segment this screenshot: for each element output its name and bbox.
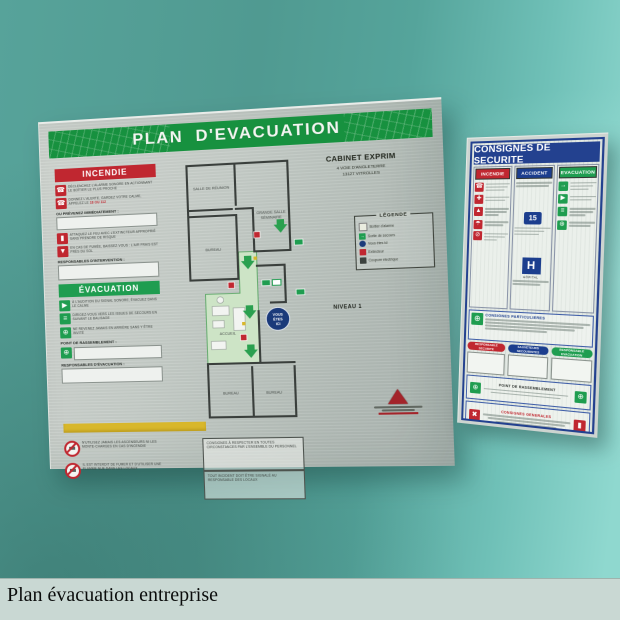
svg-text:SALLE DE RÉUNION: SALLE DE RÉUNION	[193, 184, 230, 191]
assembly-icon: ⊕	[557, 220, 567, 230]
exit-run-icon: ▶	[558, 194, 568, 204]
evacuation-writein-box	[61, 366, 163, 383]
assembly-point-icon: ⊕	[61, 347, 72, 358]
evacuation-plan-sign: PLAN D'EVACUATION INCENDIE ☎ Déclenchez …	[38, 97, 455, 469]
phone-icon: ☎	[475, 182, 484, 191]
notice-box: Consignes à respecter en toutes circonst…	[202, 437, 304, 471]
alarm-marker	[253, 256, 256, 259]
column-evacuation: EVACUATION → ▶ ≡ ⊕	[552, 164, 599, 314]
caption-text: Plan évacuation entreprise	[0, 579, 620, 607]
incendie-item: ▮ Attaquez le feu avec l'extincteur appr…	[57, 228, 158, 244]
smoke-icon: ☂	[473, 220, 482, 229]
svg-text:BUREAU: BUREAU	[266, 390, 283, 394]
no-return-icon: ⊕	[60, 327, 71, 338]
instruction-column: INCENDIE ☎ Déclenchez l'alarme sonore en…	[55, 164, 164, 384]
logo-red-bar	[379, 412, 419, 415]
plan-title: PLAN D'EVACUATION	[132, 119, 341, 150]
evacuation-header: ÉVACUATION	[59, 281, 160, 298]
svg-text:ACCUEIL: ACCUEIL	[220, 331, 236, 336]
incendie-item: ☎ Donnez l'alerte, gardez votre calme, a…	[56, 193, 157, 209]
caption-bar: Plan évacuation entreprise	[0, 578, 620, 620]
hospital-sign: H	[521, 258, 540, 275]
svg-text:BUREAU: BUREAU	[223, 391, 239, 395]
svg-text:SÉMINAIRE: SÉMINAIRE	[261, 214, 283, 220]
writein-box	[508, 354, 548, 379]
safety-sign-title: CONSIGNES DE SECURITE	[474, 141, 601, 164]
pill-sauveteurs: SAUVETEURS SECOURISTES	[508, 344, 548, 355]
assembly-point-row: ⊕	[61, 345, 163, 361]
exit-man-icon: ▶	[59, 300, 70, 311]
writein-box	[467, 351, 506, 375]
pill-responsable-securite: RESPONSABLE SECURITE	[467, 341, 505, 352]
level-label: NIVEAU 1	[333, 304, 362, 311]
hand-stop-icon: ✖	[469, 408, 480, 420]
fire-icon: ▲	[474, 207, 483, 216]
no-elevator-icon	[64, 440, 81, 456]
exit-man-icon: →	[558, 181, 568, 191]
notice-box: Tout incident doit être signalé au respo…	[203, 470, 305, 499]
svg-text:ÊTES: ÊTES	[273, 316, 283, 322]
phone-icon: ☎	[56, 198, 67, 210]
evacuation-item: ▶ À l'audition du signal sonore, évacuez…	[59, 297, 160, 312]
alarm-box-icon	[359, 222, 368, 231]
assembly-point-label: POINT DE RASSEMBLEMENT :	[60, 338, 161, 345]
incendie-item: ▼ En cas de fumée, baissez-vous : l'air …	[57, 242, 158, 257]
column-incendie: INCENDIE ☎ ✚ ▲ ☂ ⊘	[469, 166, 513, 309]
plan-title-band: PLAN D'EVACUATION	[48, 108, 432, 158]
smoke-crawl-icon: ▼	[57, 246, 68, 257]
safety-sign-frame: CONSIGNES DE SECURITE INCENDIE ☎ ✚ ▲ ☂ ⊘	[461, 137, 605, 434]
power-cut-icon	[360, 257, 367, 264]
samu-15-sign: 15	[524, 212, 542, 225]
safety-instructions-sign: CONSIGNES DE SECURITE INCENDIE ☎ ✚ ▲ ☂ ⊘	[457, 132, 608, 437]
evacuation-item: ⊕ Ne revenez jamais en arrière sans y êt…	[60, 324, 161, 338]
floor-plan: VOUS ÊTES ICI SALLE DE RÉUNION GRANDE SA…	[170, 153, 327, 428]
alarm-phone-icon: ☎	[55, 184, 66, 196]
legend-title: LÉGENDE	[376, 211, 411, 218]
evacuation-column-header: EVACUATION	[559, 166, 597, 178]
logo-triangle-icon	[388, 389, 408, 404]
stairs-icon: ≡	[557, 207, 567, 216]
no-elevator-icon: ⊘	[473, 231, 482, 240]
notice-row: Il est interdit de fumer et d'utiliser u…	[65, 461, 167, 478]
extinguisher-icon: ▮	[57, 232, 68, 244]
pill-responsable-evacuation: RESPONSABLE EVACUATION	[551, 347, 593, 358]
assembly-writein-box	[74, 345, 163, 360]
maker-logo	[373, 389, 422, 416]
evacuation-item: ≡ Dirigez-vous vers les issues de secour…	[60, 310, 161, 324]
exit-icon: →	[359, 233, 366, 240]
intervention-writein-box	[58, 261, 159, 280]
you-are-here-icon	[359, 241, 366, 248]
writein-box	[550, 357, 592, 382]
stairs-icon: ≡	[60, 313, 71, 324]
svg-text:ICI: ICI	[276, 322, 281, 326]
prohibition-notices: N'utilisez jamais les ascenseurs ni les …	[64, 437, 167, 479]
assembly-point-icon: ⊕	[470, 381, 481, 393]
incendie-column-header: INCENDIE	[475, 168, 510, 180]
evacuation-icon: ⊕	[471, 313, 483, 326]
photo-evacuation-signs: PLAN D'EVACUATION INCENDIE ☎ Déclenchez …	[0, 0, 620, 620]
map-texture-right	[343, 108, 432, 142]
prohibition-icon: ▮	[573, 419, 585, 432]
legend-item: Boîtier d'alarme	[359, 220, 430, 232]
alarm-marker	[242, 322, 245, 325]
svg-text:BUREAU: BUREAU	[205, 248, 221, 253]
extinguisher-icon	[360, 249, 367, 256]
you-are-here-badge: VOUS ÊTES ICI	[266, 307, 290, 331]
emergency-numbers: 18 ou 112	[90, 200, 106, 205]
no-smoking-icon	[65, 462, 82, 478]
legend-box: LÉGENDE Boîtier d'alarme → Sortie de sec…	[354, 212, 435, 270]
svg-text:GRANDE SALLE: GRANDE SALLE	[256, 210, 286, 216]
exit-markers	[260, 239, 305, 296]
column-accident: ACCIDENT 15 H HÔPITAL	[510, 165, 555, 312]
alarm-hand-icon: ✚	[474, 195, 483, 204]
assembly-point-icon: ⊕	[574, 390, 586, 403]
notice-row: N'utilisez jamais les ascenseurs ni les …	[64, 439, 166, 456]
site-address: CABINET EXPRIM 4 VOIE D'ANGLETERRE 13127…	[306, 152, 416, 179]
legend-item: Coupure électrique	[360, 255, 431, 264]
accident-column-header: ACCIDENT	[516, 167, 553, 179]
safety-columns: INCENDIE ☎ ✚ ▲ ☂ ⊘ ACCIDENT	[469, 164, 600, 314]
